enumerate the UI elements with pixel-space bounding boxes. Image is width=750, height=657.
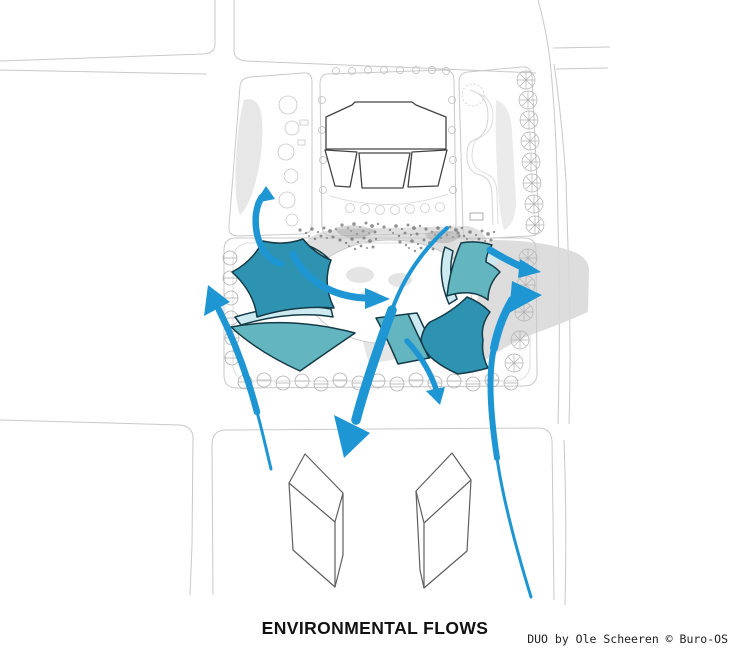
street-line [554,64,570,424]
flow-arrow-south-small-head [426,387,445,405]
street-line [212,428,554,600]
credit-line: DUO by Ole Scheeren © Buro-OS [527,632,728,646]
street-line [553,47,610,48]
tower-volume-right [416,453,471,588]
flow-arrow-east-long-shaft [497,458,531,597]
street-line [564,440,566,605]
tower-volume-left [289,454,343,587]
diagram-canvas: ENVIRONMENTAL FLOWS DUO by Ole Scheeren … [0,0,750,657]
footprint-skirt-mid [359,153,410,188]
tower-lobe-southwest [231,323,355,371]
street-line [234,0,536,73]
flow-arrow-north-head [255,186,275,203]
tower-volumes [289,453,471,588]
footprint-skirt-right [408,150,447,187]
street-line [0,70,207,74]
building-footprint [325,102,447,188]
footprint-skirt-left [325,150,357,187]
footprint-upper-block [326,102,446,149]
flow-arrow-east-long-shaft [490,348,497,458]
flow-arrow-northwest-shaft [257,412,271,469]
environmental-flows-diagram [0,0,750,657]
street-line [538,0,559,424]
street-line [0,420,193,595]
street-line [0,0,215,61]
street-line [556,68,608,69]
